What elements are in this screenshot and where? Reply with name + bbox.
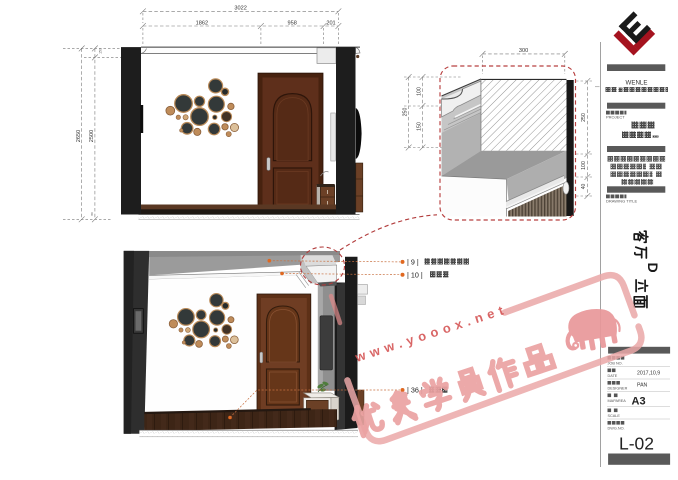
svg-text:PAN: PAN — [637, 383, 648, 389]
svg-text:1862: 1862 — [196, 20, 208, 26]
svg-text:JOB NO.: JOB NO. — [608, 362, 623, 366]
svg-text:SCALE: SCALE — [608, 414, 621, 418]
svg-text:80: 80 — [90, 212, 94, 216]
svg-text:2500: 2500 — [89, 130, 95, 142]
svg-text:WENLE: WENLE — [625, 80, 647, 87]
svg-text:DATE: DATE — [608, 374, 618, 378]
svg-text:2650: 2650 — [76, 130, 82, 142]
svg-text:300: 300 — [519, 48, 528, 54]
svg-text:D: D — [645, 263, 661, 273]
svg-text:A3: A3 — [632, 396, 646, 408]
svg-text:100: 100 — [581, 161, 587, 170]
svg-text:PROJECT: PROJECT — [606, 115, 625, 120]
svg-text:100: 100 — [416, 87, 422, 96]
svg-text:3022: 3022 — [234, 6, 246, 12]
svg-text:DRAWING TITLE: DRAWING TITLE — [606, 199, 637, 204]
svg-text:MAPAREA: MAPAREA — [608, 399, 627, 403]
svg-text:DWG.NO.: DWG.NO. — [608, 427, 625, 431]
svg-text:958: 958 — [288, 20, 297, 26]
svg-text:150: 150 — [99, 48, 103, 54]
svg-text:40: 40 — [581, 184, 587, 190]
svg-text:150: 150 — [416, 122, 422, 131]
svg-text:250: 250 — [403, 108, 409, 117]
svg-text:| 10 |: | 10 | — [407, 270, 423, 279]
svg-text:L-02: L-02 — [619, 434, 654, 454]
svg-text:| 9 |: | 9 | — [407, 258, 419, 267]
svg-text:250: 250 — [581, 113, 587, 122]
svg-text:DESIGNER: DESIGNER — [608, 387, 628, 391]
svg-text:201: 201 — [326, 20, 335, 26]
svg-text:2017,10,9: 2017,10,9 — [637, 371, 660, 377]
svg-text:www.yooox.net: www.yooox.net — [352, 301, 510, 365]
